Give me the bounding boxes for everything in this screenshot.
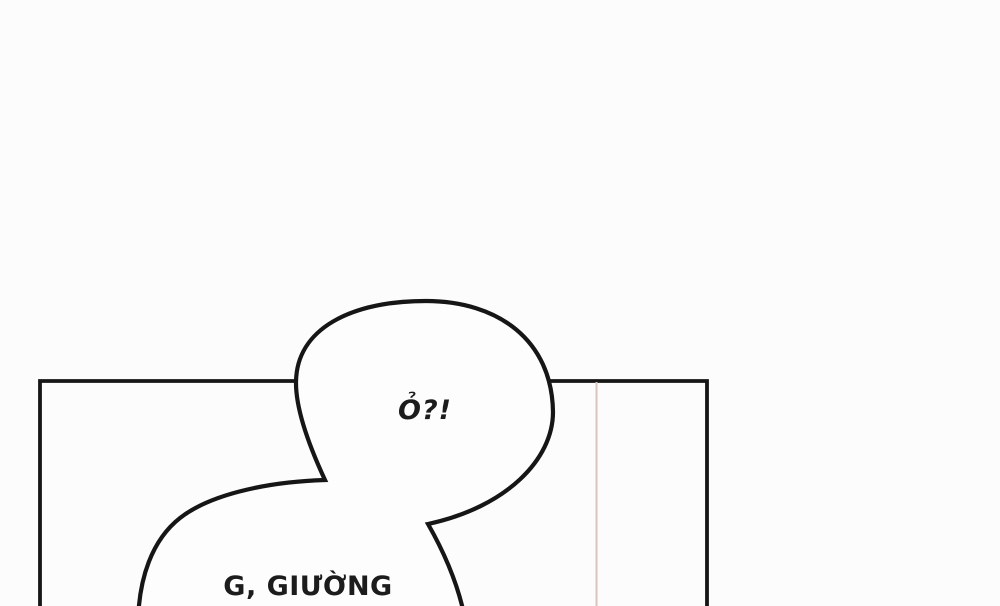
speech-bubble-outline — [138, 301, 553, 606]
comic-artwork — [0, 0, 1000, 606]
speech-text-top: Ỏ?! — [340, 396, 510, 426]
comic-page: Ỏ?! G, GIƯỜNG — [0, 0, 1000, 606]
speech-text-bottom: G, GIƯỜNG — [200, 572, 416, 602]
